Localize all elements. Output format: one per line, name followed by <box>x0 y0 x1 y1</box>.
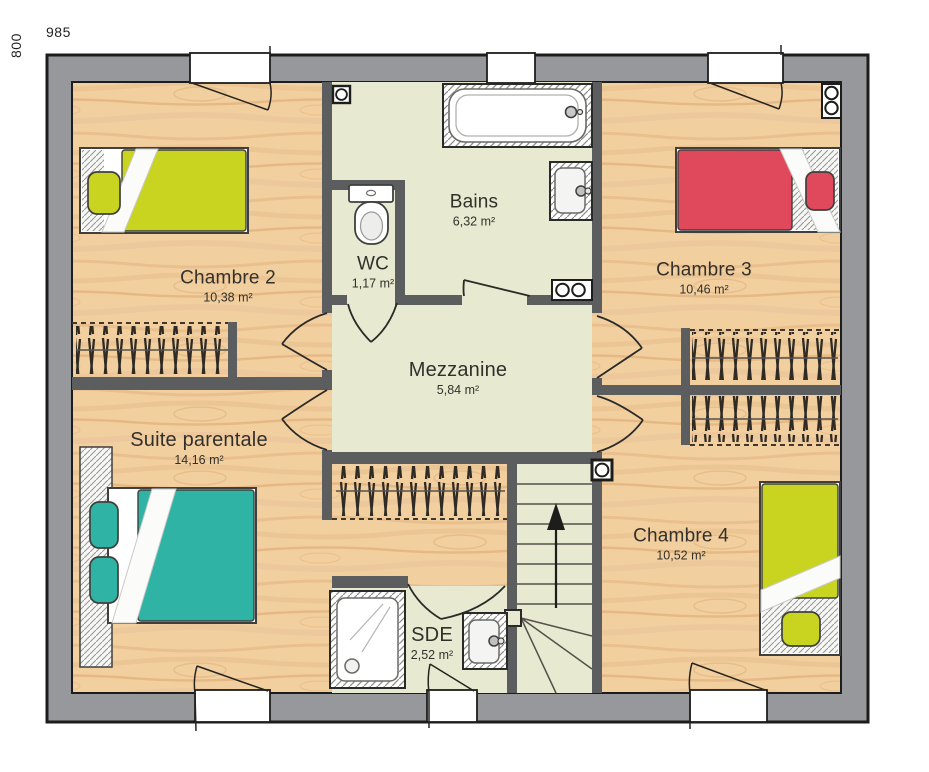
shower <box>330 591 405 688</box>
ceiling-spot-icon <box>333 86 350 103</box>
dimension-width: 985 <box>46 24 71 40</box>
window-suite-parentale <box>195 690 270 722</box>
toilet <box>349 185 393 244</box>
floor-plan-drawing <box>0 0 929 772</box>
dimension-height: 800 <box>8 33 24 58</box>
window-chambre2 <box>190 53 270 83</box>
window-bains <box>487 53 535 83</box>
window-chambre3 <box>708 53 783 83</box>
wardrobe-chambre2 <box>72 323 228 374</box>
wardrobe-chambre3 <box>690 330 841 380</box>
window-sde <box>427 690 477 722</box>
bathtub <box>443 84 592 147</box>
single-bed-chambre2 <box>80 148 248 233</box>
radiator-icon <box>822 84 841 118</box>
washbasin-bains <box>550 162 592 220</box>
ceiling-spot-icon <box>592 460 612 480</box>
wardrobe-chambre4 <box>690 396 841 445</box>
single-bed-chambre3 <box>676 148 840 232</box>
wardrobe-suite-parentale <box>332 466 507 519</box>
radiator-icon <box>552 280 592 300</box>
washbasin-sde <box>463 613 507 669</box>
single-bed-chambre4 <box>760 482 840 655</box>
floor-plan: 985 800 <box>0 0 929 772</box>
window-chambre4 <box>690 690 767 722</box>
